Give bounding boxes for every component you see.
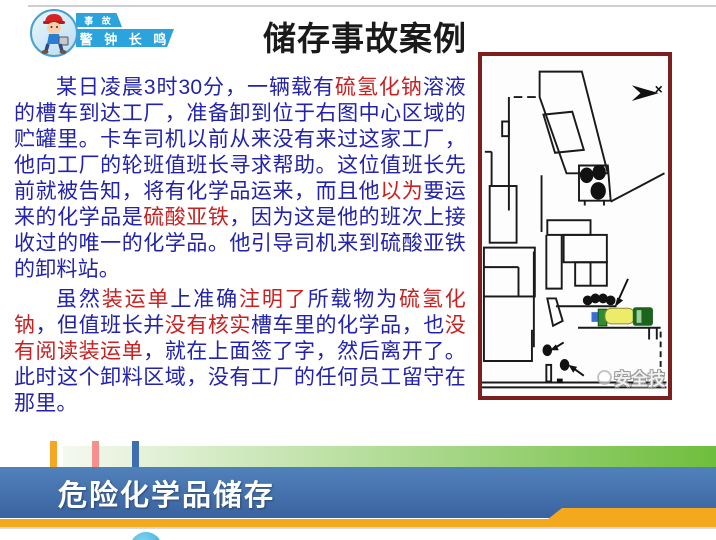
tanker-truck bbox=[591, 307, 652, 326]
footer-green-gradient-bar bbox=[63, 446, 716, 467]
watermark: 安全技 bbox=[597, 365, 665, 390]
text-segment-blue: ，但值班长并 bbox=[36, 314, 165, 337]
text-segment-red: 硫氢化钠 bbox=[335, 76, 423, 99]
text-segment-blue: 虽然 bbox=[56, 288, 102, 311]
text-segment-red: 没有核实 bbox=[165, 314, 251, 337]
badge-slogan-label: 警 钟 长 鸣 bbox=[80, 29, 171, 48]
text-segment-blue: 某日凌晨3时30分，一辆载有 bbox=[56, 76, 335, 99]
watermark-logo-icon bbox=[597, 370, 612, 385]
badge-ribbon-small: 事 故 bbox=[76, 13, 122, 27]
worker-cartoon-icon bbox=[30, 9, 78, 57]
text-segment-blue: 所载物为 bbox=[308, 288, 399, 311]
storage-tanks-large bbox=[580, 165, 606, 200]
factory-buildings bbox=[482, 72, 666, 388]
case-paragraph-1: 某日凌晨3时30分，一辆载有硫氢化钠溶液的槽车到达工厂，准备卸到位于右图中心区域… bbox=[14, 75, 466, 283]
bottom-decoration-circle bbox=[130, 532, 162, 540]
road-marker bbox=[557, 379, 563, 384]
text-segment-red: 硫酸亚铁 bbox=[143, 206, 229, 229]
text-segment-blue: 槽车里的化学品，也 bbox=[251, 314, 445, 337]
footer-tick-orange bbox=[50, 441, 57, 467]
footer-tick-blue bbox=[132, 441, 139, 467]
factory-map: 安全技 bbox=[478, 52, 672, 400]
storage-tanks-small bbox=[583, 294, 616, 306]
presentation-slide: 事 故 警 钟 长 鸣 储存事故案例 某日凌晨3时30分，一辆载有硫氢化钠溶液的… bbox=[0, 0, 716, 540]
text-segment-red: 以为 bbox=[380, 180, 423, 203]
text-segment-blue: 上准确 bbox=[170, 288, 239, 311]
case-text: 某日凌晨3时30分，一辆载有硫氢化钠溶液的槽车到达工厂，准备卸到位于右图中心区域… bbox=[14, 75, 466, 421]
footer-tick-pink bbox=[92, 441, 99, 467]
case-paragraph-2: 虽然装运单上准确注明了所载物为硫氢化钠，但值班长并没有核实槽车里的化学品，也没有… bbox=[14, 287, 466, 417]
footer-shadow-line bbox=[0, 527, 716, 529]
factory-map-drawing bbox=[482, 56, 676, 404]
text-segment-red: 装运单 bbox=[102, 288, 171, 311]
badge-tag-label: 事 故 bbox=[84, 14, 114, 27]
footer-section-title: 危险化学品储存 bbox=[0, 472, 275, 514]
badge-ribbon-large: 警 钟 长 鸣 bbox=[76, 29, 174, 47]
watermark-text: 安全技 bbox=[614, 365, 665, 390]
text-segment-red: 注明了 bbox=[239, 288, 308, 311]
north-arrow-icon bbox=[632, 85, 662, 101]
